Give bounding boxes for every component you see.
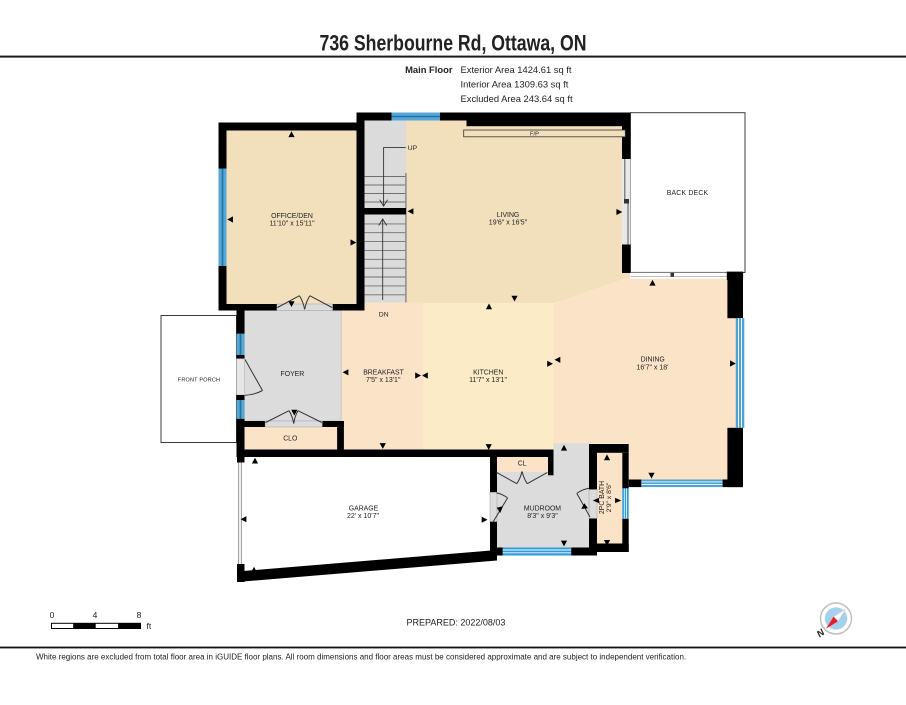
svg-text:BREAKFAST: BREAKFAST — [363, 370, 404, 377]
svg-text:F/P: F/P — [530, 132, 539, 138]
svg-text:BACK DECK: BACK DECK — [667, 190, 709, 197]
svg-text:White regions are excluded fro: White regions are excluded from total fl… — [36, 653, 686, 662]
svg-text:22' x 10'7": 22' x 10'7" — [347, 513, 380, 520]
svg-text:ft: ft — [147, 621, 152, 631]
svg-text:CL: CL — [518, 460, 527, 467]
svg-text:0: 0 — [50, 610, 55, 620]
svg-text:16'7" x 18': 16'7" x 18' — [636, 364, 668, 371]
svg-text:736 Sherbourne Rd, Ottawa, ON: 736 Sherbourne Rd, Ottawa, ON — [320, 31, 587, 56]
svg-text:19'6" x 16'5": 19'6" x 16'5" — [489, 220, 528, 227]
svg-text:4: 4 — [93, 610, 98, 620]
svg-text:OFFICE/DEN: OFFICE/DEN — [271, 213, 313, 220]
svg-text:DINING: DINING — [641, 357, 665, 364]
svg-text:Interior Area 1309.63 sq ft: Interior Area 1309.63 sq ft — [461, 79, 569, 90]
svg-text:8: 8 — [137, 610, 142, 620]
svg-text:11'10" x 15'11": 11'10" x 15'11" — [269, 221, 315, 228]
svg-text:GARAGE: GARAGE — [349, 506, 379, 513]
svg-text:UP: UP — [408, 145, 418, 152]
svg-text:FRONT PORCH: FRONT PORCH — [178, 378, 220, 384]
svg-text:FOYER: FOYER — [281, 371, 305, 378]
svg-text:MUDROOM: MUDROOM — [524, 506, 561, 513]
svg-text:LIVING: LIVING — [497, 212, 520, 219]
svg-text:KITCHEN: KITCHEN — [473, 370, 503, 377]
svg-text:PREPARED: 2022/08/03: PREPARED: 2022/08/03 — [407, 618, 506, 628]
svg-text:CLO: CLO — [283, 435, 298, 442]
svg-text:7'5" x 13'1": 7'5" x 13'1" — [366, 377, 401, 384]
svg-text:Exterior Area 1424.61 sq ft: Exterior Area 1424.61 sq ft — [461, 64, 572, 75]
svg-text:Excluded Area 243.64 sq ft: Excluded Area 243.64 sq ft — [461, 93, 573, 104]
svg-text:2'9" x 8'6": 2'9" x 8'6" — [606, 482, 613, 512]
svg-text:DN: DN — [379, 311, 389, 318]
svg-text:Main Floor: Main Floor — [405, 64, 453, 75]
svg-text:11'7" x 13'1": 11'7" x 13'1" — [469, 377, 507, 384]
svg-text:2PC BATH: 2PC BATH — [599, 481, 606, 514]
svg-text:8'3" x 9'3": 8'3" x 9'3" — [527, 513, 558, 520]
